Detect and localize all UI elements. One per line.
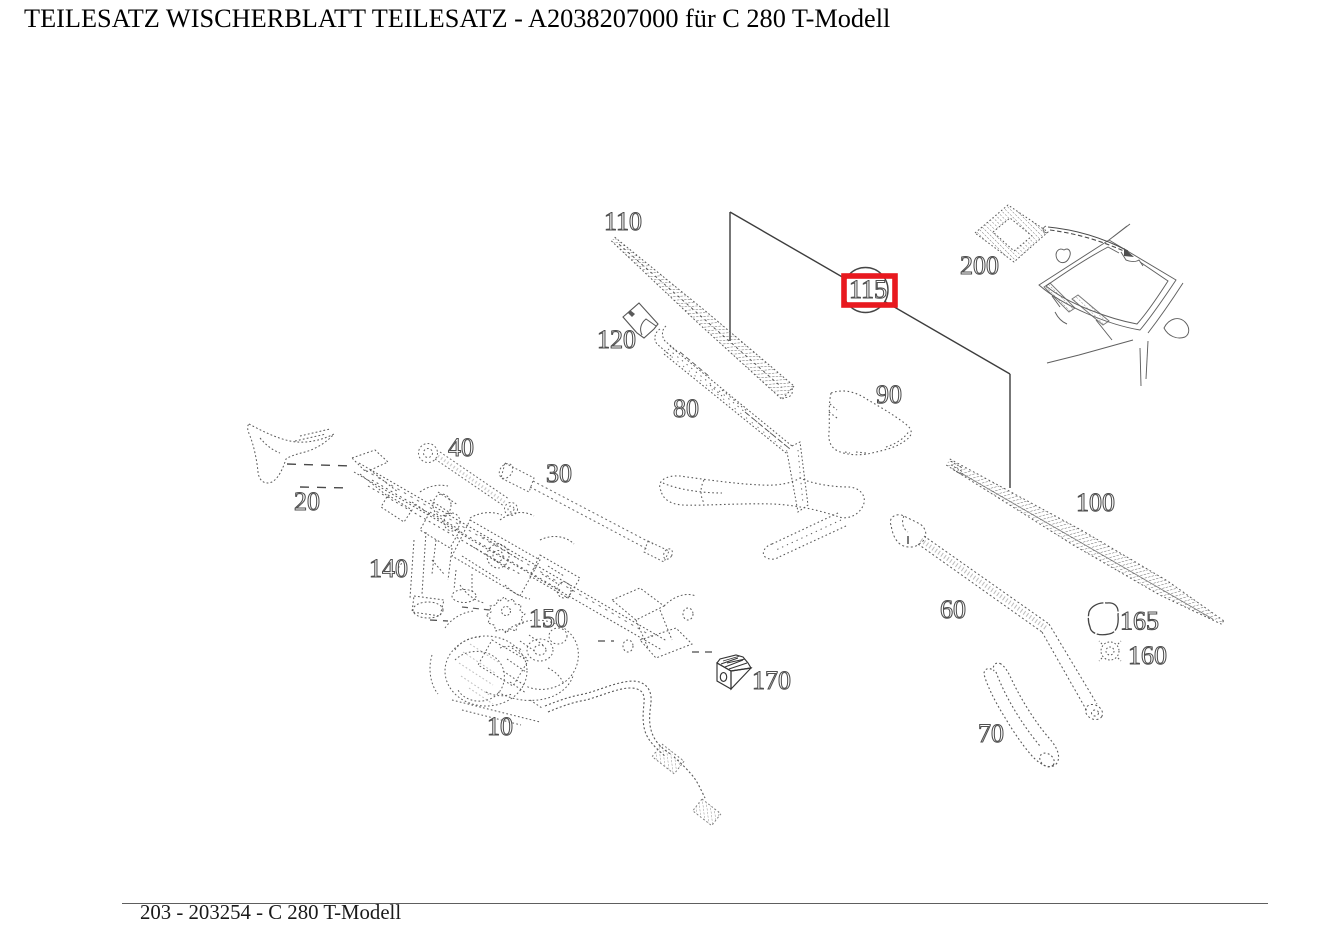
svg-text:80: 80 bbox=[673, 394, 699, 423]
svg-text:110: 110 bbox=[604, 207, 642, 236]
svg-text:90: 90 bbox=[876, 380, 902, 409]
svg-text:160: 160 bbox=[1128, 641, 1167, 670]
svg-text:200: 200 bbox=[960, 251, 999, 280]
svg-text:20: 20 bbox=[294, 487, 320, 516]
svg-text:140: 140 bbox=[369, 554, 408, 583]
svg-text:30: 30 bbox=[546, 459, 572, 488]
svg-text:165: 165 bbox=[1120, 607, 1159, 636]
svg-text:TEILESATZ WISCHERBLATT TEILESA: TEILESATZ WISCHERBLATT TEILESATZ - A2038… bbox=[24, 4, 890, 33]
svg-text:70: 70 bbox=[978, 719, 1004, 748]
svg-text:115: 115 bbox=[849, 275, 887, 304]
svg-text:150: 150 bbox=[529, 604, 568, 633]
svg-text:40: 40 bbox=[448, 433, 474, 462]
svg-text:10: 10 bbox=[487, 712, 513, 741]
svg-text:203 - 203254 - C 280 T-Modell: 203 - 203254 - C 280 T-Modell bbox=[140, 901, 401, 924]
svg-text:100: 100 bbox=[1076, 488, 1115, 517]
svg-text:60: 60 bbox=[940, 595, 966, 624]
svg-text:120: 120 bbox=[597, 325, 636, 354]
svg-text:170: 170 bbox=[752, 666, 791, 695]
